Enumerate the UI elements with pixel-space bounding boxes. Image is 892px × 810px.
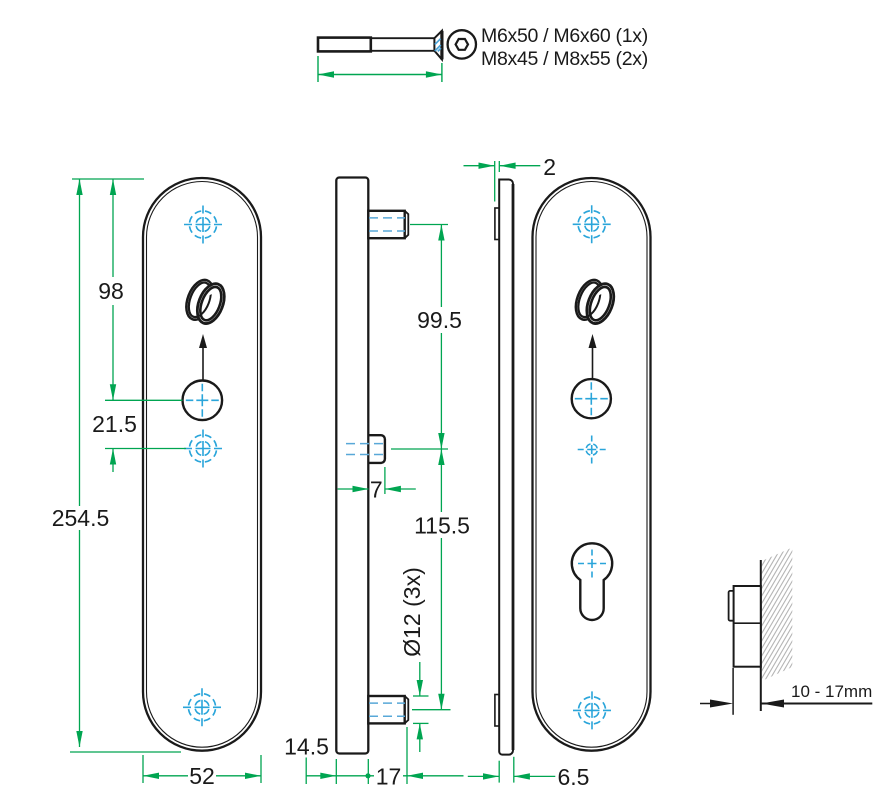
svg-text:99.5: 99.5 xyxy=(417,307,462,333)
svg-text:10 - 17mm: 10 - 17mm xyxy=(791,682,872,701)
svg-text:21.5: 21.5 xyxy=(92,411,137,437)
svg-text:254.5: 254.5 xyxy=(52,505,110,531)
svg-text:6.5: 6.5 xyxy=(558,764,590,790)
svg-text:98: 98 xyxy=(98,278,124,304)
svg-text:Ø12 (3x): Ø12 (3x) xyxy=(399,567,425,656)
svg-text:17: 17 xyxy=(376,764,402,790)
svg-text:52: 52 xyxy=(189,763,215,789)
svg-text:2: 2 xyxy=(543,154,556,180)
svg-text:M6x50 / M6x60 (1x): M6x50 / M6x60 (1x) xyxy=(481,25,648,47)
svg-text:14.5: 14.5 xyxy=(284,734,329,760)
svg-text:115.5: 115.5 xyxy=(414,513,470,539)
svg-text:M8x45 / M8x55 (2x): M8x45 / M8x55 (2x) xyxy=(481,48,648,70)
svg-text:7: 7 xyxy=(370,477,383,503)
